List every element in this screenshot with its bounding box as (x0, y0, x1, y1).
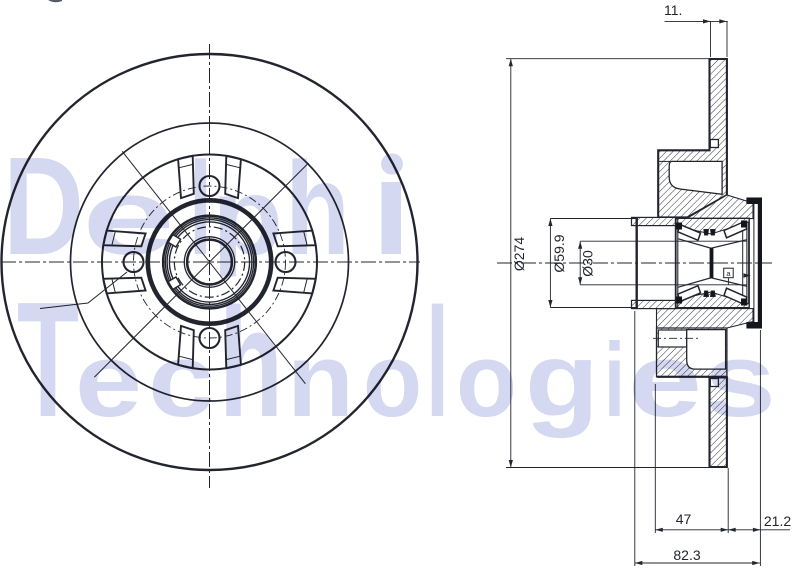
svg-text:s: s (704, 322, 776, 439)
svg-text:l: l (189, 135, 212, 282)
svg-text:e: e (82, 156, 175, 278)
svg-text:e: e (628, 322, 702, 439)
svg-text:h: h (285, 135, 350, 282)
svg-text:Ø274: Ø274 (511, 237, 527, 271)
svg-text:Ø30: Ø30 (580, 250, 596, 277)
svg-text:21.2: 21.2 (764, 513, 791, 529)
svg-text:i: i (604, 322, 625, 439)
svg-text:Ø59.9: Ø59.9 (551, 234, 567, 272)
svg-text:o: o (456, 322, 517, 439)
svg-text:T: T (17, 268, 79, 451)
svg-text:82.3: 82.3 (673, 547, 700, 563)
svg-text:D: D (3, 128, 84, 284)
svg-text:11.: 11. (664, 2, 682, 18)
svg-text:e: e (75, 322, 142, 439)
svg-text:l: l (426, 276, 449, 449)
svg-text:g: g (525, 322, 599, 439)
svg-text:47: 47 (676, 511, 692, 527)
svg-text:h: h (219, 276, 283, 449)
svg-text:o: o (363, 322, 422, 439)
svg-text:p: p (212, 156, 283, 278)
svg-text:c: c (148, 322, 215, 439)
svg-text:n: n (287, 322, 354, 439)
